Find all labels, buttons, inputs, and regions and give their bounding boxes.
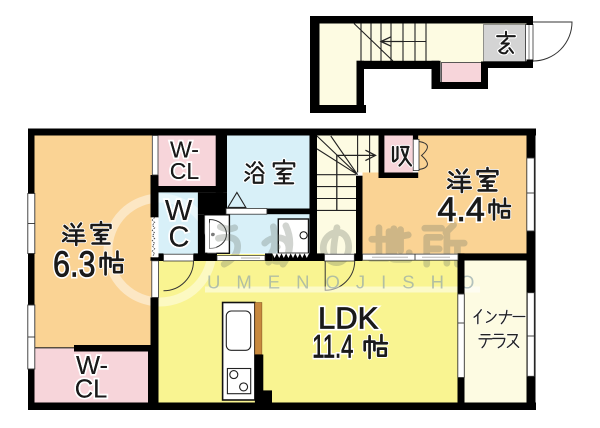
svg-text:CL: CL	[170, 158, 200, 184]
svg-text:6.3: 6.3	[53, 244, 96, 285]
svg-text:4.4: 4.4	[438, 191, 485, 229]
svg-text:CL: CL	[75, 376, 108, 404]
svg-text:11.4: 11.4	[312, 329, 353, 365]
svg-text:C: C	[169, 222, 190, 254]
svg-text:UMENOJISHO: UMENOJISHO	[207, 272, 490, 293]
